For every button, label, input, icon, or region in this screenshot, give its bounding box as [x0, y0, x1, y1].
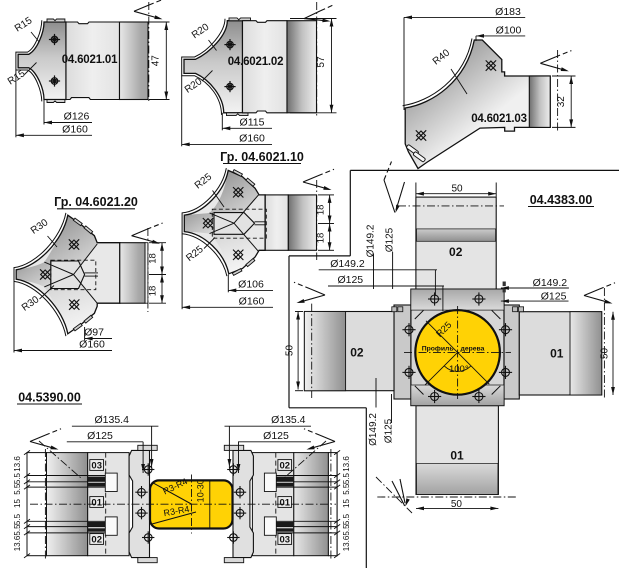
svg-text:Ø100: Ø100 [496, 24, 522, 36]
svg-text:10-30: 10-30 [196, 479, 206, 502]
svg-text:Ø149.2: Ø149.2 [533, 277, 568, 289]
svg-text:15: 15 [342, 499, 351, 508]
svg-text:Ø160: Ø160 [239, 295, 265, 307]
svg-text:Ø135.4: Ø135.4 [94, 414, 129, 426]
svg-text:5.5: 5.5 [13, 513, 22, 525]
svg-text:Гр. 04.6021.10: Гр. 04.6021.10 [220, 150, 304, 164]
svg-text:50: 50 [451, 184, 463, 195]
svg-text:18: 18 [148, 253, 159, 264]
svg-text:Ø126: Ø126 [64, 111, 90, 123]
svg-text:01: 01 [550, 346, 564, 360]
svg-text:дерева: дерева [461, 345, 485, 352]
svg-text:13.6: 13.6 [13, 535, 22, 551]
svg-text:47: 47 [151, 55, 162, 67]
svg-text:Ø125: Ø125 [263, 430, 289, 442]
svg-text:Ø149.2: Ø149.2 [330, 258, 365, 270]
svg-text:01: 01 [450, 449, 464, 463]
svg-text:Гр. 04.6021.20: Гр. 04.6021.20 [54, 195, 138, 209]
svg-text:03: 03 [280, 535, 291, 546]
svg-text:18: 18 [148, 286, 159, 297]
svg-text:04.6021.02: 04.6021.02 [228, 56, 284, 68]
svg-text:100°: 100° [449, 364, 469, 375]
svg-text:Ø125: Ø125 [385, 227, 396, 252]
svg-text:01: 01 [280, 498, 291, 509]
svg-text:Ø149.2: Ø149.2 [366, 224, 377, 257]
svg-text:Ø183: Ø183 [495, 6, 521, 18]
svg-text:Ø125: Ø125 [337, 274, 363, 286]
svg-text:Ø125: Ø125 [541, 290, 567, 302]
svg-text:Профиль: Профиль [422, 345, 454, 352]
svg-text:5.5: 5.5 [342, 472, 351, 484]
svg-text:02: 02 [449, 245, 463, 259]
svg-text:5.5: 5.5 [13, 524, 22, 536]
svg-text:50: 50 [599, 348, 610, 360]
svg-text:Ø125: Ø125 [87, 430, 113, 442]
svg-text:04.6021.03: 04.6021.03 [471, 113, 527, 125]
svg-text:Ø160: Ø160 [239, 132, 265, 144]
svg-text:04.5390.00: 04.5390.00 [18, 391, 81, 405]
svg-text:5.5: 5.5 [342, 513, 351, 525]
svg-text:5.5: 5.5 [342, 524, 351, 536]
svg-text:03: 03 [91, 461, 102, 472]
svg-text:13.6: 13.6 [342, 456, 351, 472]
svg-text:Ø115: Ø115 [240, 116, 265, 128]
svg-text:Ø106: Ø106 [238, 278, 264, 290]
svg-text:18: 18 [316, 233, 327, 244]
svg-text:01: 01 [91, 498, 102, 509]
svg-text:15: 15 [13, 499, 22, 508]
svg-text:Ø160: Ø160 [79, 339, 105, 351]
svg-text:13.6: 13.6 [13, 456, 22, 472]
svg-text:02: 02 [91, 535, 102, 546]
svg-text:02: 02 [280, 461, 291, 472]
svg-text:Ø97: Ø97 [84, 327, 104, 339]
svg-text:Ø125: Ø125 [384, 418, 395, 443]
svg-text:18: 18 [316, 205, 327, 216]
svg-text:04.4383.00: 04.4383.00 [530, 193, 593, 207]
svg-text:5.5: 5.5 [13, 472, 22, 484]
svg-text:02: 02 [350, 346, 364, 360]
svg-text:5.5: 5.5 [13, 483, 22, 495]
svg-text:Ø160: Ø160 [62, 123, 88, 135]
svg-text:Ø149.2: Ø149.2 [368, 413, 379, 446]
svg-text:50: 50 [285, 345, 296, 357]
svg-text:57: 57 [316, 56, 327, 68]
svg-text:13.6: 13.6 [342, 535, 351, 551]
svg-text:5.5: 5.5 [342, 483, 351, 495]
svg-text:Ø135.4: Ø135.4 [271, 414, 306, 426]
svg-text:04.6021.01: 04.6021.01 [62, 54, 118, 66]
